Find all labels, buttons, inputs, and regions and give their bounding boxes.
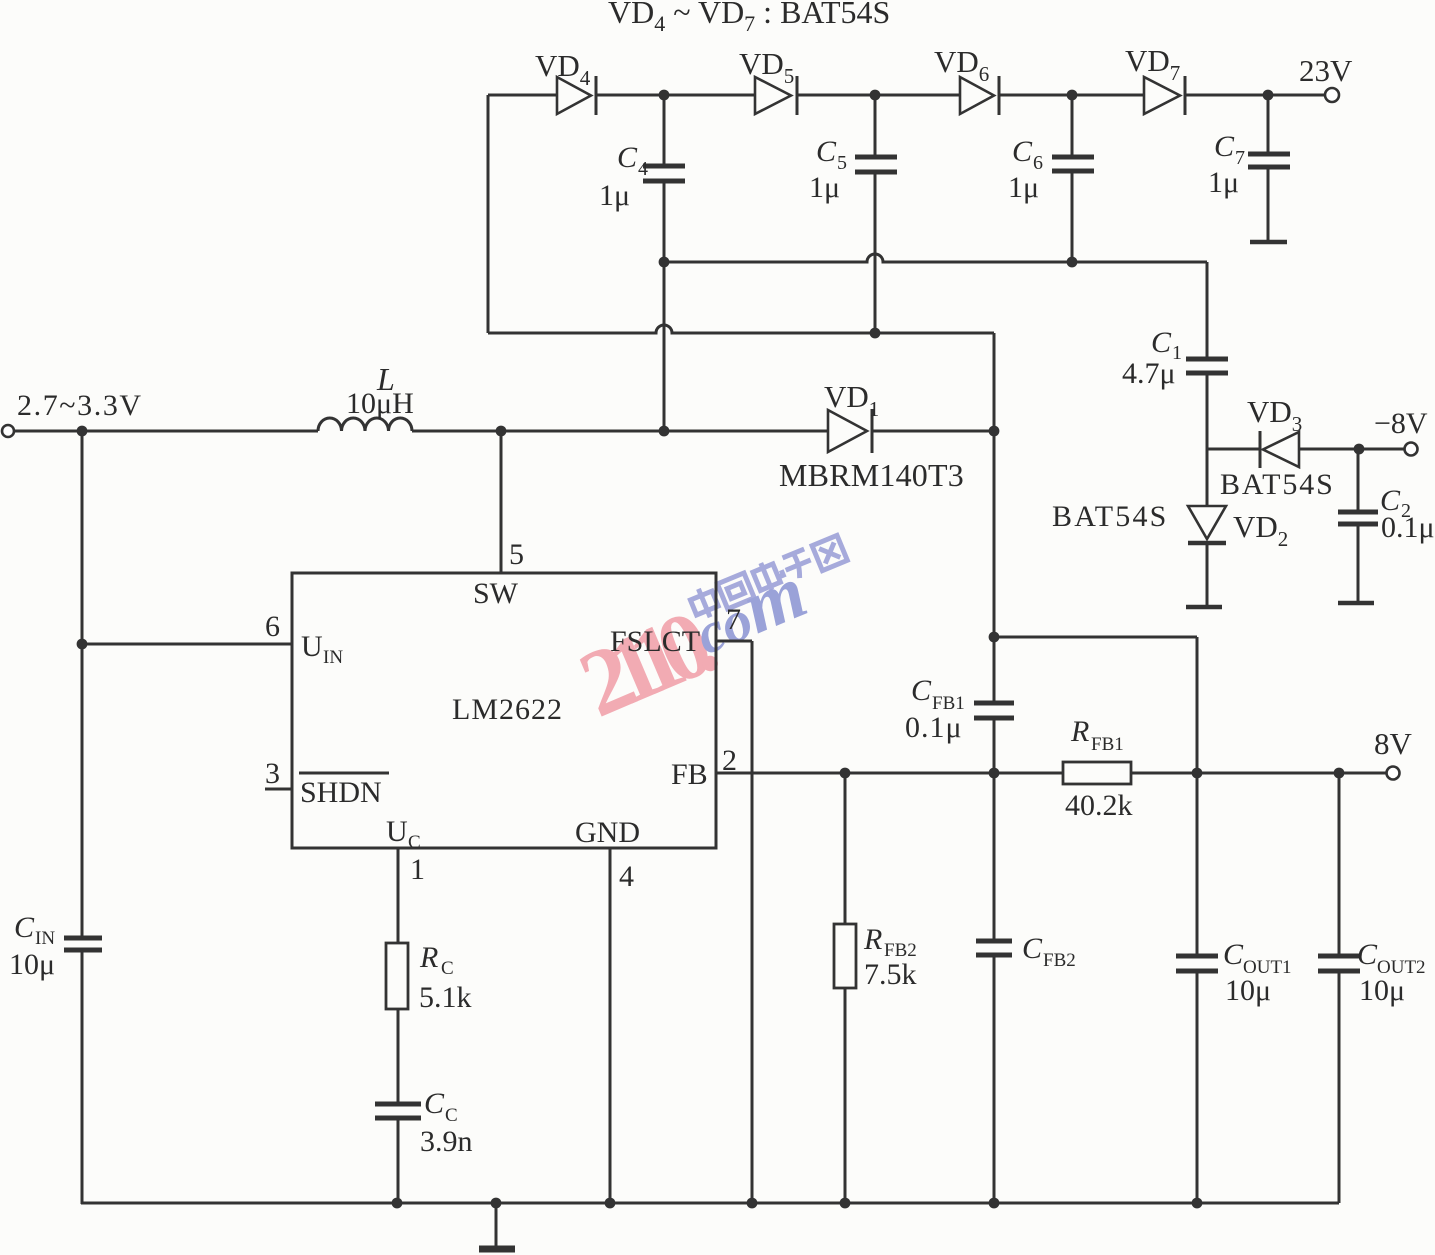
svg-text:C: C	[424, 1087, 445, 1120]
svg-text:R: R	[863, 923, 882, 956]
svg-text:C: C	[1214, 130, 1235, 163]
svg-text:−8V: −8V	[1374, 407, 1428, 440]
svg-text:C: C	[617, 141, 638, 174]
svg-text:C: C	[1022, 932, 1043, 965]
svg-text:FB2: FB2	[1043, 950, 1076, 971]
svg-text:BAT54S: BAT54S	[1052, 500, 1169, 533]
svg-text:U: U	[386, 815, 408, 848]
svg-text:10μ: 10μ	[1225, 974, 1271, 1007]
svg-text:C: C	[911, 674, 932, 707]
svg-text:23V: 23V	[1299, 53, 1353, 88]
svg-text:0.1μ: 0.1μ	[1381, 511, 1435, 544]
svg-text:1μ: 1μ	[1008, 171, 1039, 204]
svg-text:SHDN: SHDN	[300, 776, 382, 809]
svg-text:6: 6	[265, 610, 280, 643]
svg-text:10μ: 10μ	[1359, 974, 1405, 1007]
svg-text:C: C	[816, 135, 837, 168]
svg-text:U: U	[301, 630, 323, 663]
svg-text:7.5k: 7.5k	[864, 958, 917, 991]
svg-text:1μ: 1μ	[809, 171, 840, 204]
svg-text:C: C	[1012, 135, 1033, 168]
svg-text:10μH: 10μH	[346, 387, 414, 420]
svg-text:IN: IN	[35, 928, 55, 949]
svg-text:4: 4	[619, 860, 634, 893]
svg-text:8V: 8V	[1374, 726, 1413, 761]
svg-text:FB: FB	[671, 758, 708, 791]
svg-text:5: 5	[509, 538, 524, 571]
svg-text:FSLCT: FSLCT	[610, 625, 700, 658]
svg-text:C: C	[1357, 938, 1378, 971]
svg-text:SW: SW	[473, 577, 519, 610]
svg-text:C: C	[408, 832, 421, 853]
svg-text:3: 3	[265, 757, 280, 790]
svg-text:4.7μ: 4.7μ	[1122, 357, 1176, 390]
svg-text:C: C	[14, 911, 35, 944]
svg-text:3.9n: 3.9n	[420, 1125, 473, 1158]
svg-text:GND: GND	[575, 816, 640, 849]
svg-text:7: 7	[726, 603, 741, 636]
svg-text:0.1μ: 0.1μ	[905, 711, 963, 744]
svg-text:C: C	[1223, 938, 1244, 971]
svg-text:R: R	[1070, 715, 1089, 748]
svg-text:2.7~3.3V: 2.7~3.3V	[17, 389, 143, 422]
svg-text:C: C	[1151, 326, 1172, 359]
svg-text:5.1k: 5.1k	[419, 981, 472, 1014]
svg-text:MBRM140T3: MBRM140T3	[779, 457, 964, 493]
svg-text:1μ: 1μ	[1208, 166, 1239, 199]
svg-text:IN: IN	[323, 647, 343, 668]
svg-text:C: C	[445, 1105, 458, 1126]
svg-text:R: R	[419, 941, 438, 974]
svg-text:LM2622: LM2622	[452, 693, 563, 726]
svg-text:1μ: 1μ	[599, 179, 630, 212]
svg-text:10μ: 10μ	[9, 948, 55, 981]
svg-text:1: 1	[410, 853, 425, 886]
svg-text:FB1: FB1	[1091, 734, 1124, 755]
svg-text:4: 4	[638, 158, 648, 180]
svg-text:40.2k: 40.2k	[1065, 789, 1133, 822]
svg-text:BAT54S: BAT54S	[1220, 468, 1335, 501]
svg-text:C: C	[441, 958, 454, 979]
